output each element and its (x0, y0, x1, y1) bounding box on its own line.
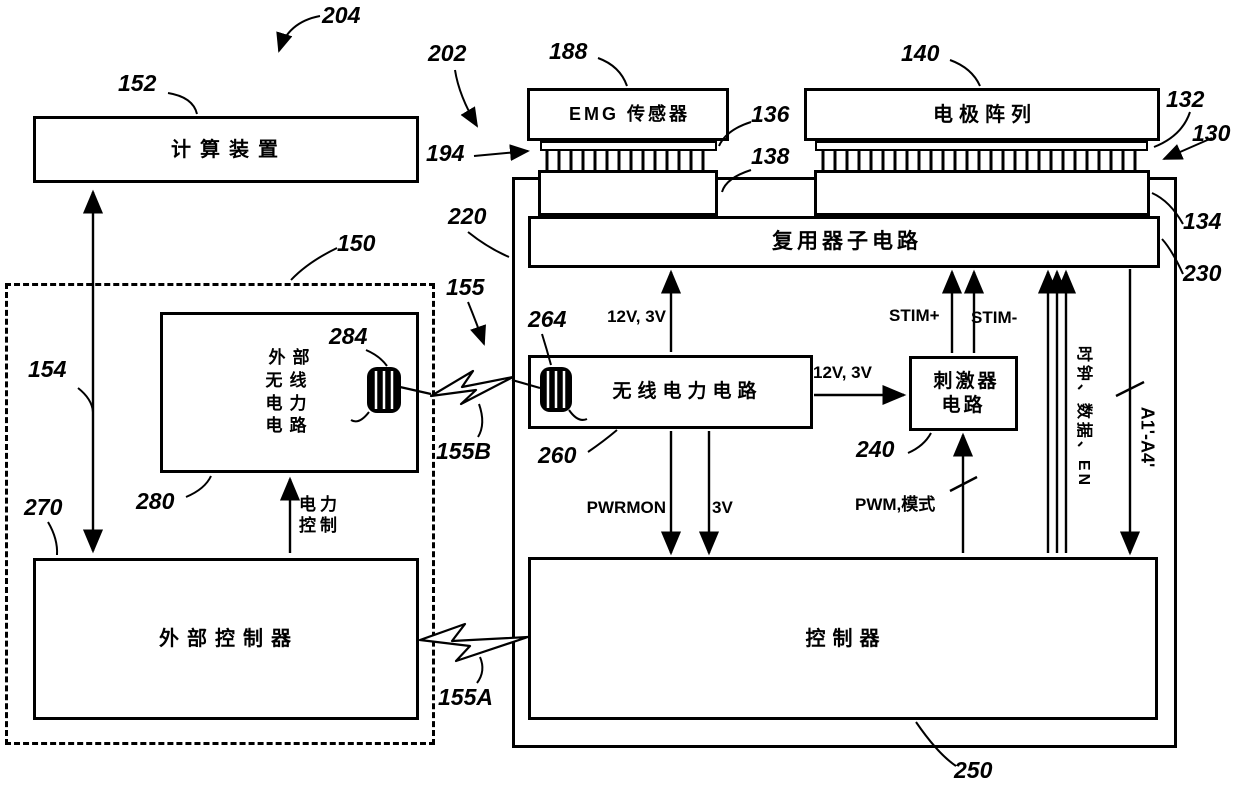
ref-188: 188 (549, 38, 587, 65)
ref-250: 250 (954, 757, 992, 784)
multiplexer-label: 复用器子电路 (766, 228, 922, 255)
ref-130: 130 (1192, 120, 1230, 147)
ref-155B: 155B (436, 438, 491, 465)
electrode-array-label: 电极阵列 (927, 102, 1037, 128)
ref-270: 270 (24, 494, 62, 521)
leader-155B (478, 404, 482, 437)
ref-132: 132 (1166, 86, 1204, 113)
box-stimulator: 刺激器 电路 (909, 356, 1018, 431)
bar-electrode-connector (815, 141, 1148, 151)
box-controller: 控制器 (528, 557, 1158, 720)
computing-device-label: 计算装置 (165, 137, 287, 163)
ref-230: 230 (1183, 260, 1221, 287)
signal-stim-plus: STIM+ (889, 305, 940, 326)
box-electrode-array: 电极阵列 (804, 88, 1160, 141)
external-wireless-power-label: 外部 无线 电力 电路 (263, 347, 317, 439)
leader-220 (468, 232, 509, 257)
ref-202: 202 (428, 40, 466, 67)
leader-152 (168, 93, 197, 114)
signal-pwm-mode: PWM,模式 (855, 494, 935, 515)
leader-204 (279, 16, 320, 51)
emg-comb (547, 150, 703, 170)
ref-140: 140 (901, 40, 939, 67)
ref-280: 280 (136, 488, 174, 515)
leader-202 (455, 70, 477, 126)
leader-155A (477, 657, 482, 683)
leader-150 (291, 248, 337, 280)
ref-240: 240 (856, 436, 894, 463)
signal-stim-minus: STIM- (971, 307, 1017, 328)
stimulator-label: 刺激器 电路 (927, 370, 999, 418)
external-controller-label: 外部控制器 (153, 626, 299, 652)
controller-label: 控制器 (800, 626, 887, 652)
signal-supply-stim: 12V, 3V (813, 362, 872, 383)
signal-clock-data-en: 时钟、数据、EN (1074, 346, 1098, 488)
ref-152: 152 (118, 70, 156, 97)
signal-pwrmon: PWRMON (586, 497, 666, 518)
signal-3v: 3V (712, 497, 733, 518)
box-emg-sensor: EMG 传感器 (527, 88, 729, 141)
box-computing-device: 计算装置 (33, 116, 419, 183)
box-multiplexer: 复用器子电路 (528, 216, 1160, 268)
ref-284: 284 (329, 323, 367, 350)
ref-136: 136 (751, 101, 789, 128)
wireless-link-155B (431, 371, 513, 404)
leader-155 (468, 302, 484, 344)
ref-138: 138 (751, 143, 789, 170)
ref-150: 150 (337, 230, 375, 257)
ref-194: 194 (426, 140, 464, 167)
ref-204: 204 (322, 2, 360, 29)
electrode-comb (823, 150, 1135, 170)
leader-140 (950, 60, 980, 86)
signal-a1-a4: A1'-A4' (1137, 407, 1158, 468)
ref-264: 264 (528, 306, 566, 333)
patent-figure-canvas: 复用器子电路 EMG 传感器 电极阵列 计算装置 外部 无线 电力 电路 无线电… (0, 0, 1240, 788)
wireless-power-label: 无线电力电路 (578, 380, 762, 405)
box-wireless-power: 无线电力电路 (528, 355, 813, 429)
ref-155: 155 (446, 274, 484, 301)
ref-134: 134 (1183, 208, 1221, 235)
emg-sensor-label: EMG 传感器 (566, 103, 690, 126)
box-electrode-interposer (814, 170, 1150, 216)
ref-220: 220 (448, 203, 486, 230)
leader-188 (598, 58, 627, 86)
box-external-controller: 外部控制器 (33, 558, 419, 720)
box-emg-interposer (538, 170, 718, 216)
ref-154: 154 (28, 356, 66, 383)
leader-194 (474, 151, 528, 156)
ref-260: 260 (538, 442, 576, 469)
signal-supply-up: 12V, 3V (596, 306, 666, 327)
box-external-wireless-power: 外部 无线 电力 电路 (160, 312, 419, 473)
ref-155A: 155A (438, 684, 493, 711)
bar-emg-connector (540, 141, 717, 151)
signal-power-control: 电力 控制 (299, 494, 341, 537)
